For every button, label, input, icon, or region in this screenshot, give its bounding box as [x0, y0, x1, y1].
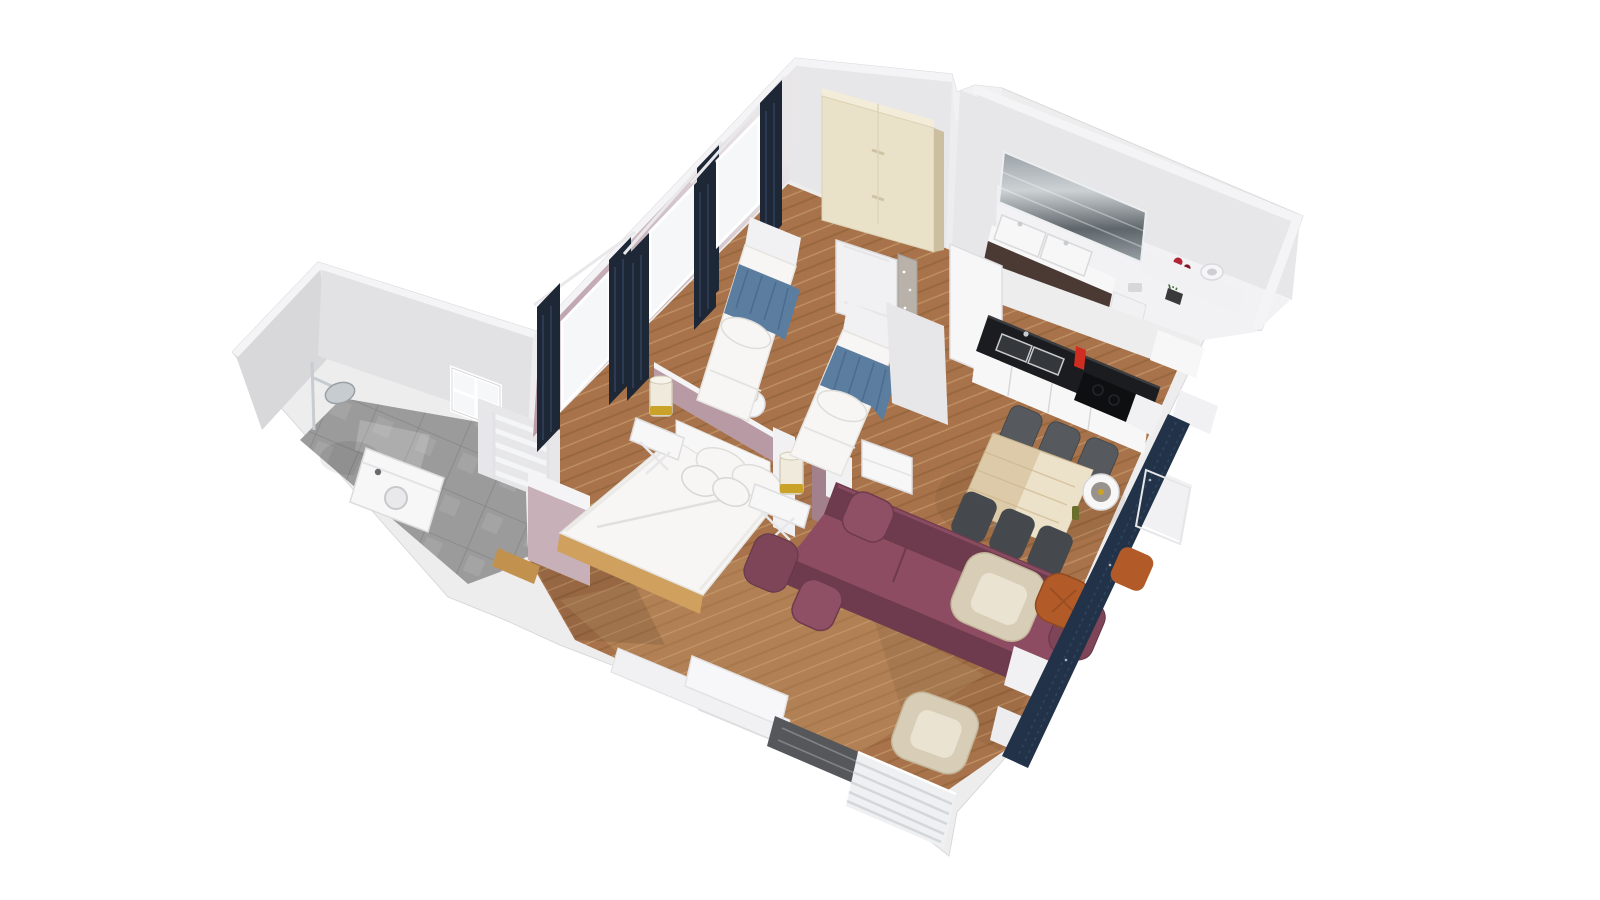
floorplan-canvas — [0, 0, 1600, 900]
red-faucet[interactable] — [1074, 346, 1086, 370]
pendant-lamp[interactable] — [1083, 474, 1119, 510]
floorplan-3d-render — [0, 0, 1600, 900]
table-lamp-left[interactable] — [650, 376, 672, 416]
bottle[interactable] — [1072, 506, 1079, 520]
